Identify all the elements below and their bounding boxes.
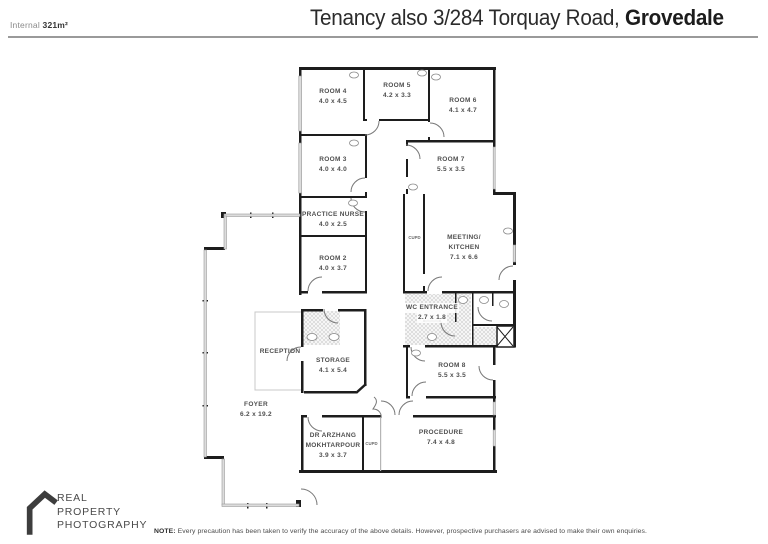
room-label-room5: ROOM 54.2 x 3.3 — [367, 81, 427, 101]
room-label-dr-arzhang: DR ARZHANGMOKHTARPOUR3.9 x 3.7 — [298, 431, 368, 460]
room-label-meeting-kitchen: MEETING/KITCHEN7.1 x 6.6 — [434, 233, 494, 262]
room-label-room6: ROOM 64.1 x 4.7 — [433, 96, 493, 116]
logo-wordmark: REAL PROPERTY PHOTOGRAPHY — [57, 492, 147, 533]
logo-line-1: REAL — [57, 492, 147, 506]
room-label-room3: ROOM 34.0 x 4.0 — [303, 155, 363, 175]
house-roof-icon — [24, 489, 58, 537]
note-prefix: NOTE: — [154, 528, 176, 535]
room-label-storage: STORAGE4.1 x 5.4 — [303, 356, 363, 376]
room-label-reception: RECEPTION — [250, 347, 310, 357]
room-label-foyer: FOYER6.2 x 19.2 — [226, 400, 286, 420]
room-label-room4: ROOM 44.0 x 4.5 — [303, 87, 363, 107]
floorplan-page: Internal 321m² Tenancy also 3/284 Torqua… — [0, 0, 768, 544]
note-text: Every precaution has been taken to verif… — [176, 528, 647, 535]
room-label-room7: ROOM 75.5 x 3.5 — [421, 155, 481, 175]
room-label-practice-nurse: PRACTICE NURSE4.0 x 2.5 — [296, 210, 370, 230]
disclaimer-note: NOTE: Every precaution has been taken to… — [154, 528, 760, 535]
room-label-room2: ROOM 24.0 x 3.7 — [303, 254, 363, 274]
room-label-room8: ROOM 85.5 x 3.5 — [422, 361, 482, 381]
logo-line-3: PHOTOGRAPHY — [57, 519, 147, 533]
room-label-cupd-1: CUPD — [406, 235, 423, 241]
room-label-procedure: PROCEDURE7.4 x 4.8 — [406, 428, 476, 448]
room-label-wc-entrance: WC ENTRANCE2.7 x 1.8 — [403, 303, 461, 323]
room-label-cupd-2: CUPD — [363, 441, 380, 447]
logo-line-2: PROPERTY — [57, 506, 147, 520]
